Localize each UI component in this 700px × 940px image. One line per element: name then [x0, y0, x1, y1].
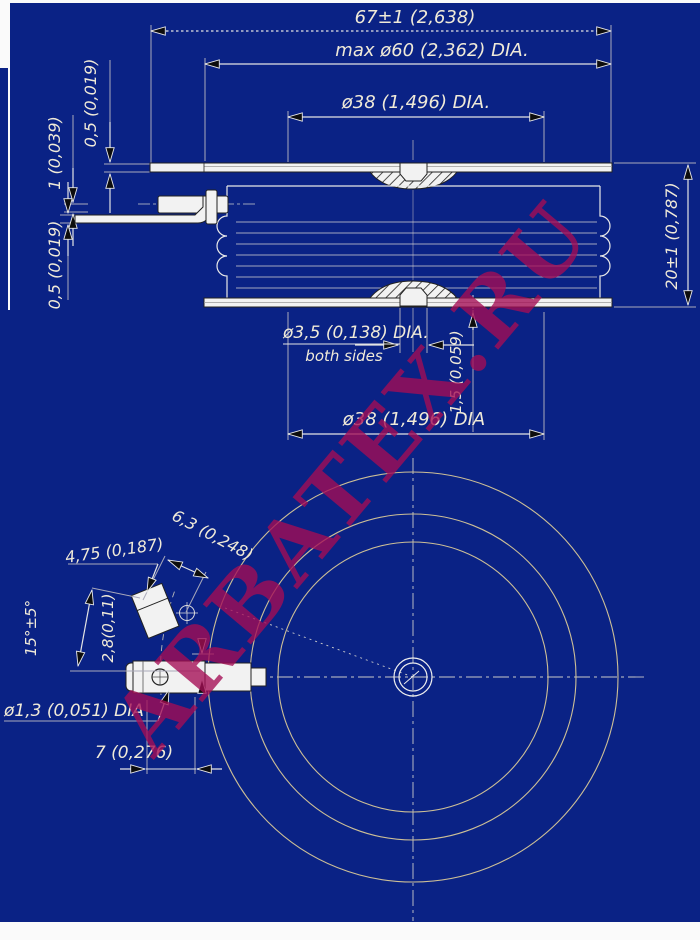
dim-terminal-hole-diameter: ø1,3 (0,051) DIA [3, 701, 144, 721]
page-edge-left-line [8, 68, 10, 310]
drawing-page: 67±1 (2,638) max ø60 (2,362) DIA. ø38 (1… [0, 0, 700, 940]
dim-lead-strip-thickness: 0,5 (0,019) [45, 221, 64, 310]
gate-tab-alternate-position [131, 583, 179, 638]
dim-flange-thickness: 0,5 (0,019) [81, 59, 100, 148]
dim-pole-diameter-top: ø38 (1,496) DIA. [341, 92, 490, 113]
dim-center-hole-diameter: ø3,5 (0,138) DIA. [282, 323, 429, 343]
dim-center-hole-depth: 1,5 (0,059) [447, 330, 465, 413]
dim-lead-angle: 15°±5° [22, 600, 40, 656]
top-flange [150, 163, 612, 172]
dim-lead-thickness: 1 (0,039) [45, 116, 64, 190]
gate-lead-assembly [75, 190, 258, 224]
technical-drawing: 67±1 (2,638) max ø60 (2,362) DIA. ø38 (1… [0, 0, 700, 940]
bottom-view: 4,75 (0,187) 6,3 (0,248) 15°±5° 2,8(0,11… [3, 458, 648, 921]
dim-overall-width: 67±1 (2,638) [355, 7, 476, 28]
dim-tab-length: 6,3 (0,248) [169, 506, 256, 564]
dim-body-height: 20±1 (0,787) [662, 182, 681, 289]
tab-pivot-hole [176, 602, 198, 624]
dim-center-hole-note: both sides [305, 347, 383, 365]
dim-lead-offset: 2,8(0,11) [99, 594, 117, 663]
dim-terminal-length: 7 (0,276) [95, 743, 173, 763]
dim-max-diameter: max ø60 (2,362) DIA. [335, 40, 528, 61]
dim-tab-width: 4,75 (0,187) [64, 534, 165, 567]
page-margin-left [0, 0, 10, 68]
bottom-center-hole [400, 288, 427, 306]
gate-terminal-lug [126, 661, 266, 693]
page-margin-bottom [0, 922, 700, 940]
dim-pole-diameter-bottom: ø38 (1,496) DIA [342, 409, 485, 430]
page-margin-top [0, 0, 700, 3]
top-center-hole [400, 163, 427, 181]
side-view: 67±1 (2,638) max ø60 (2,362) DIA. ø38 (1… [45, 7, 696, 440]
